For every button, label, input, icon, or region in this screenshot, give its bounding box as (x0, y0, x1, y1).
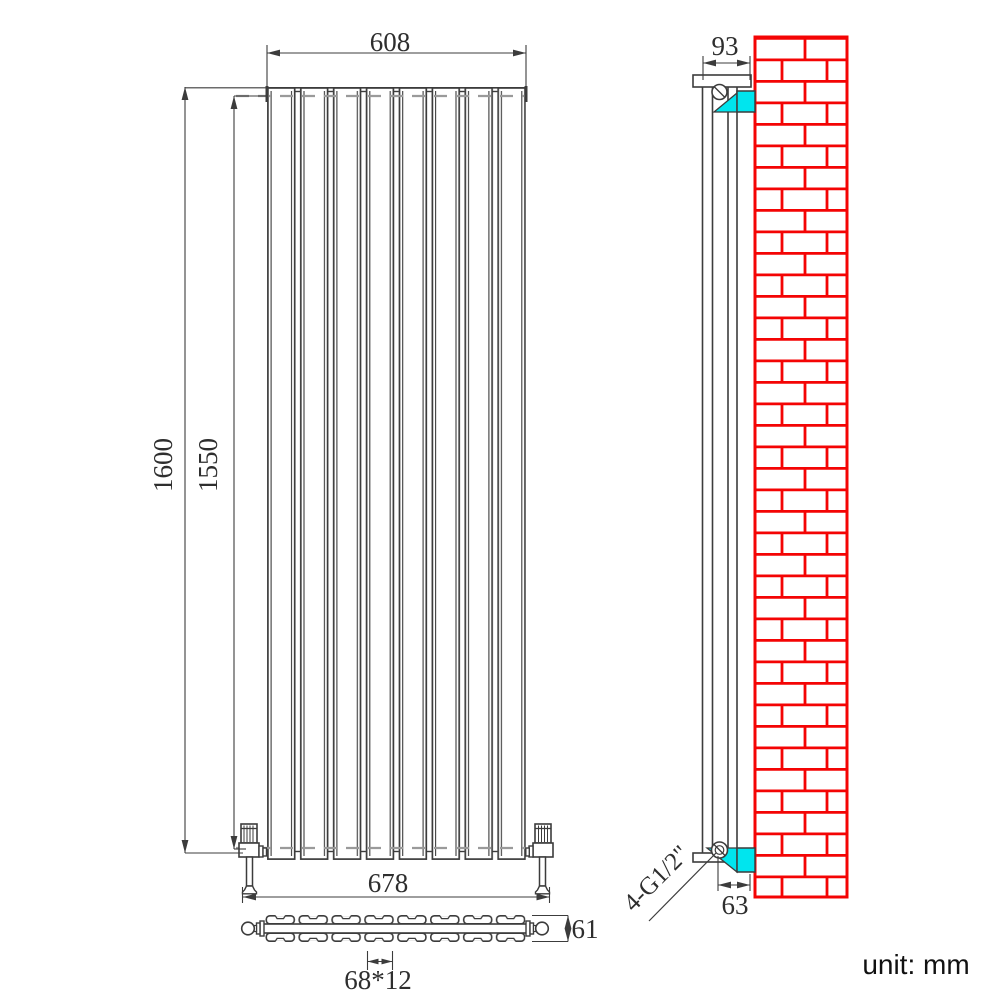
bottom-wall-bracket (707, 842, 755, 872)
radiator-dimension-drawing: 608 1600 1550 678 (0, 0, 1001, 1001)
radiator-panels (267, 87, 526, 860)
header-bar (263, 924, 527, 933)
dim-span-678: 678 (243, 868, 550, 903)
left-valve (239, 824, 267, 894)
dim-depth-93: 93 (703, 31, 750, 80)
right-valve (526, 824, 553, 894)
side-panels (703, 87, 738, 853)
dim-label-1550: 1550 (193, 438, 223, 492)
brick-wall (755, 37, 847, 897)
dim-label-61: 61 (572, 914, 599, 944)
top-view-right-valve (526, 921, 548, 936)
front-view: 608 1600 1550 678 (148, 27, 553, 903)
dim-label-63: 63 (722, 890, 749, 920)
dim-label-1600: 1600 (148, 438, 178, 492)
top-view-left-valve (242, 921, 264, 936)
unit-note: unit: mm (862, 949, 969, 980)
drawing-canvas: 608 1600 1550 678 (0, 0, 1001, 1001)
thread-label: 4-G1/2" (619, 841, 695, 917)
dim-height-1550: 1550 (193, 96, 267, 849)
dim-label-678: 678 (368, 868, 409, 898)
dim-label-608: 608 (370, 27, 411, 57)
top-wall-bracket (712, 85, 755, 113)
dim-section-68x12: 68*12 (344, 951, 412, 995)
dim-label-93: 93 (712, 31, 739, 61)
top-view: 61 68*12 (242, 914, 599, 995)
side-view: 93 63 4-G1/2" (619, 31, 847, 921)
dim-label-68x12: 68*12 (344, 965, 412, 995)
